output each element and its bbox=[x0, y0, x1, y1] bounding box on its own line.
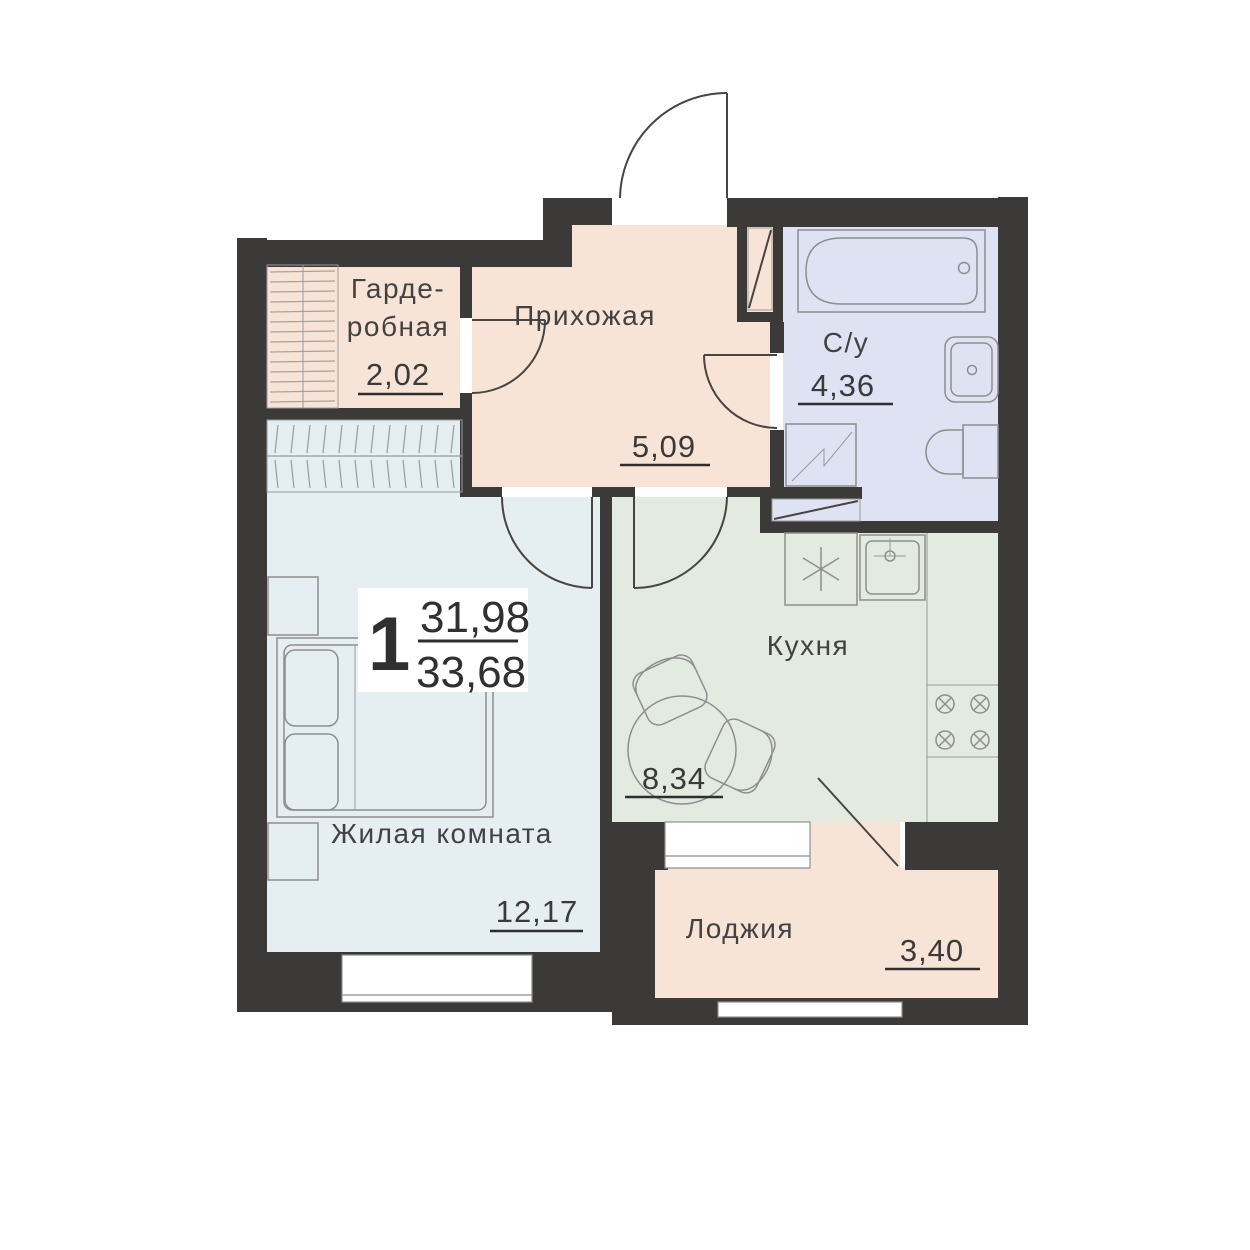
wall bbox=[543, 198, 612, 225]
wall bbox=[770, 430, 784, 487]
floor-plan: Гарде- робная 2,02 Прихожая 5,09 С/у 4,3… bbox=[0, 0, 1250, 1250]
living-label: Жилая комната bbox=[331, 818, 553, 849]
wall bbox=[770, 487, 862, 499]
wall bbox=[237, 238, 267, 1012]
entrance-door bbox=[620, 93, 727, 198]
wall bbox=[267, 408, 472, 420]
wall bbox=[773, 225, 783, 312]
bathroom-label: С/у bbox=[823, 327, 870, 358]
wardrobe-area: 2,02 bbox=[366, 357, 430, 392]
wall bbox=[998, 197, 1028, 1025]
wardrobe-label-line2: робная bbox=[347, 311, 449, 342]
wall bbox=[770, 322, 784, 353]
kitchen-label: Кухня bbox=[767, 630, 849, 661]
unit-rooms-count: 1 bbox=[368, 602, 410, 687]
unit-living-area: 31,98 bbox=[420, 593, 530, 642]
loggia-window bbox=[718, 1002, 902, 1017]
bathroom-area: 4,36 bbox=[811, 368, 875, 403]
wall bbox=[472, 487, 502, 497]
living-area: 12,17 bbox=[496, 894, 579, 929]
wall bbox=[737, 198, 747, 312]
living-room-window bbox=[342, 955, 532, 1002]
loggia-label: Лоджия bbox=[686, 913, 794, 944]
wall bbox=[600, 487, 612, 952]
kitchen-area: 8,34 bbox=[642, 761, 706, 796]
kitchen-loggia-window bbox=[665, 822, 810, 868]
wall bbox=[737, 312, 783, 322]
wall bbox=[592, 487, 635, 497]
wall bbox=[727, 198, 1028, 227]
wall bbox=[460, 265, 472, 318]
hallway-area: 5,09 bbox=[632, 429, 696, 464]
loggia-area: 3,40 bbox=[900, 933, 964, 968]
unit-info-box: 1 31,98 33,68 bbox=[358, 588, 530, 697]
wall bbox=[237, 240, 572, 267]
wardrobe-label-line1: Гарде- bbox=[351, 273, 445, 304]
wall bbox=[905, 822, 1028, 870]
wall bbox=[460, 393, 472, 408]
unit-total-area: 33,68 bbox=[416, 648, 526, 697]
wall bbox=[612, 822, 668, 870]
hallway-label: Прихожая bbox=[514, 300, 656, 331]
clothes-rail-icon bbox=[267, 420, 462, 492]
wardrobe-shelves-icon bbox=[267, 265, 338, 408]
wall bbox=[762, 521, 998, 533]
